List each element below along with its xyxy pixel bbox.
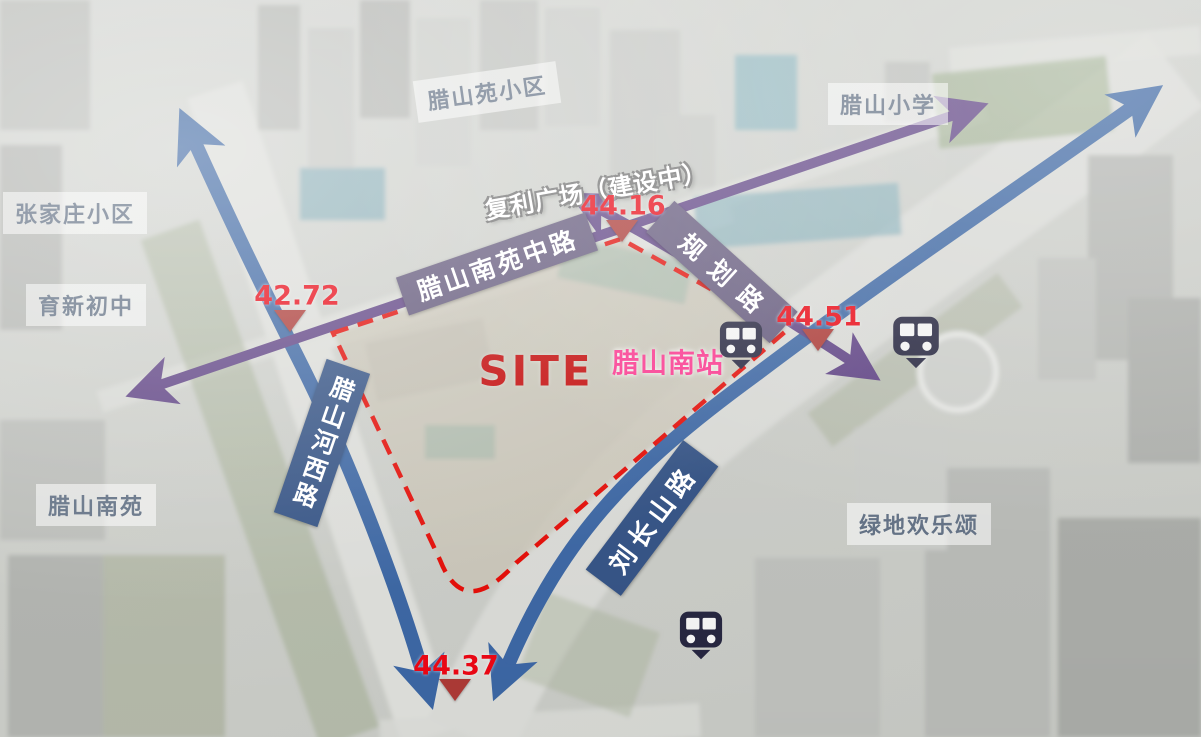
- label-lvdi-huanlesong: 绿地欢乐颂: [847, 503, 991, 545]
- label-zhangjiazhuang-xiaoqu: 张家庄小区: [3, 192, 147, 234]
- metro-station-icon: [889, 315, 943, 373]
- metro-station-icon: [716, 320, 766, 374]
- station-label: 腊山南站: [612, 342, 724, 381]
- site-label: SITE: [478, 347, 593, 396]
- metro-station-icon: [676, 610, 726, 664]
- elevation-marker-south: [439, 679, 471, 701]
- label-lashan-xiaoxue: 腊山小学: [828, 83, 948, 125]
- aerial-site-map: 张家庄小区 育新初中 腊山苑小区 腊山小学 腊山南苑 绿地欢乐颂 复利广场（建设…: [0, 0, 1201, 737]
- elevation-marker-north: [606, 220, 638, 242]
- elevation-value-west: 42.72: [254, 281, 339, 312]
- elevation-marker-east: [802, 329, 834, 351]
- road-arrow-west: [187, 125, 428, 692]
- annotation-overlay: [0, 0, 1201, 737]
- elevation-value-south: 44.37: [413, 651, 498, 682]
- label-yuxin-chuzhong: 育新初中: [26, 284, 146, 326]
- elevation-value-north: 44.16: [580, 191, 665, 222]
- elevation-value-east: 44.51: [776, 302, 861, 333]
- label-lashan-nanyuan: 腊山南苑: [36, 484, 156, 526]
- elevation-marker-west: [274, 310, 306, 332]
